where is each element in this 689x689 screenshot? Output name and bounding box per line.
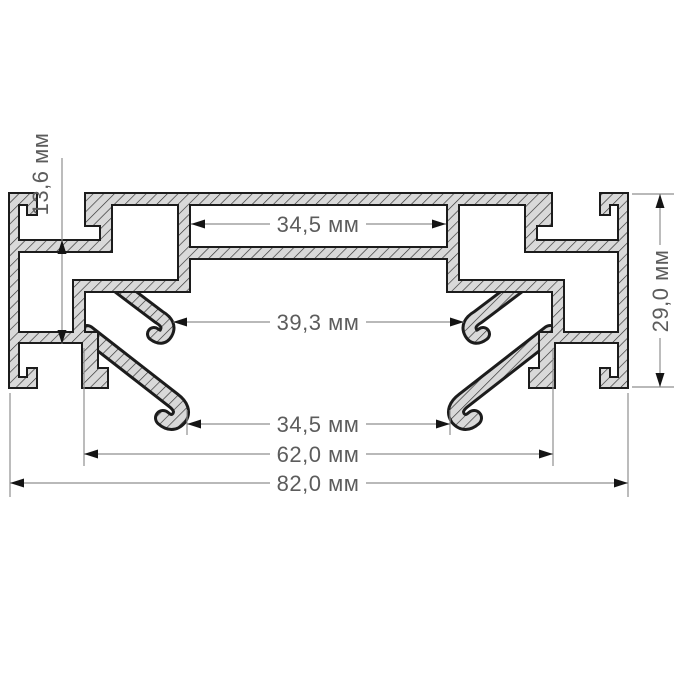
dim-label-bottom-inner: 62,0 мм: [277, 442, 360, 467]
dim-upper-hook-span: 39,3 мм: [173, 310, 464, 335]
dim-label-upper-hooks: 39,3 мм: [277, 310, 360, 335]
arrow-right-icon: [614, 479, 628, 488]
profile-drawing: 34,5 мм 39,3 мм 34,5 мм 62,0 мм 82: [0, 0, 689, 689]
arrow-down-icon: [656, 373, 665, 387]
technical-drawing-canvas: 34,5 мм 39,3 мм 34,5 мм 62,0 мм 82: [0, 0, 689, 689]
dim-label-top-inner: 34,5 мм: [277, 212, 360, 237]
dim-label-lower-hooks: 34,5 мм: [277, 412, 360, 437]
dim-label-pocket-height: 13,6 мм: [28, 133, 53, 216]
arrow-left-icon: [187, 420, 201, 429]
arrow-left-icon: [84, 450, 98, 459]
dim-label-overall-height: 29,0 мм: [648, 250, 673, 333]
arrow-left-icon: [10, 479, 24, 488]
arrow-right-icon: [539, 450, 553, 459]
arrow-right-icon: [436, 420, 450, 429]
dim-lower-hook-span: 34,5 мм: [187, 410, 450, 437]
retaining-hooks: [87, 286, 550, 422]
dim-overall-height: 29,0 мм: [632, 194, 674, 387]
dim-label-overall-width: 82,0 мм: [277, 471, 360, 496]
dim-bottom-inner-width: 62,0 мм: [84, 348, 553, 467]
arrow-up-icon: [656, 194, 665, 208]
